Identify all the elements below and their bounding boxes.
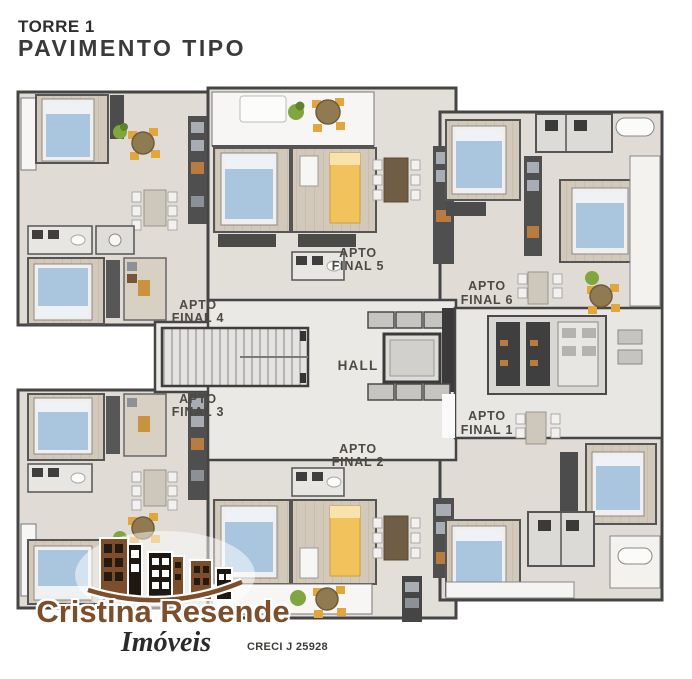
kitchen-counter: [188, 116, 207, 224]
kitchen-tower: [402, 576, 422, 622]
dining-set: [132, 190, 177, 230]
laundry: [96, 226, 134, 254]
hall-label: HALL: [338, 358, 379, 373]
balcony: [21, 98, 36, 170]
agency-tagline: Imóveis: [88, 627, 244, 659]
apt-label-final-5: APTO: [339, 246, 377, 260]
bed: [221, 153, 277, 225]
bed: [592, 452, 644, 516]
shaft-wall: [442, 308, 455, 392]
svg-text:FINAL 4: FINAL 4: [172, 311, 225, 325]
bathroom: [28, 226, 92, 254]
apt-label-final-1: APTO: [468, 409, 506, 423]
apt-label-final-2: APTO: [339, 442, 377, 456]
page: APTO FINAL 4 APTO FINAL 5 APTO FINAL 6 H…: [0, 0, 692, 679]
kitchen-counter: [524, 156, 542, 256]
balcony-seat: [616, 118, 654, 136]
floor-plan: APTO FINAL 4 APTO FINAL 5 APTO FINAL 6 H…: [0, 0, 692, 679]
closet: [560, 452, 578, 512]
elevator-shaft: [496, 322, 520, 386]
kitchen-cabinets: [124, 394, 166, 456]
apt-label-final-6: APTO: [468, 279, 506, 293]
svg-text:FINAL 6: FINAL 6: [461, 293, 514, 307]
svg-text:FINAL 3: FINAL 3: [172, 405, 225, 419]
balcony-seat: [618, 548, 652, 564]
bathroom: [536, 114, 612, 152]
closet: [106, 396, 120, 454]
floor-type-title: PAVIMENTO TIPO: [18, 36, 246, 60]
apt-label-final-3: APTO: [179, 392, 217, 406]
tower-title: TORRE 1: [18, 18, 246, 36]
apt-label-final-4: APTO: [179, 298, 217, 312]
bathroom: [28, 464, 92, 492]
bed: [572, 188, 628, 254]
bathroom: [528, 512, 594, 566]
dining-set: [373, 516, 420, 560]
balcony: [630, 156, 660, 306]
plan-title: TORRE 1 PAVIMENTO TIPO: [18, 18, 246, 60]
svg-text:FINAL 2: FINAL 2: [332, 455, 385, 469]
lounger: [240, 96, 286, 122]
stairs: [162, 328, 308, 386]
svg-text:FINAL 1: FINAL 1: [461, 423, 514, 437]
dining-set: [132, 470, 177, 510]
bed: [42, 99, 94, 161]
dining-set: [373, 158, 420, 202]
bed: [452, 126, 506, 194]
elevator-shaft: [526, 322, 550, 386]
svg-text:FINAL 5: FINAL 5: [332, 259, 385, 273]
wardrobe: [218, 234, 276, 247]
agency-license: CRECI J 25928: [247, 641, 328, 653]
balcony: [446, 582, 574, 598]
bathroom: [292, 468, 344, 496]
wardrobe: [446, 202, 486, 216]
agency-brand-name: Cristina Resende: [12, 594, 314, 630]
bed: [34, 264, 92, 320]
closet: [106, 260, 120, 318]
kitchen-cabinets: [124, 258, 166, 320]
bed: [34, 398, 92, 454]
plant: [585, 271, 599, 285]
